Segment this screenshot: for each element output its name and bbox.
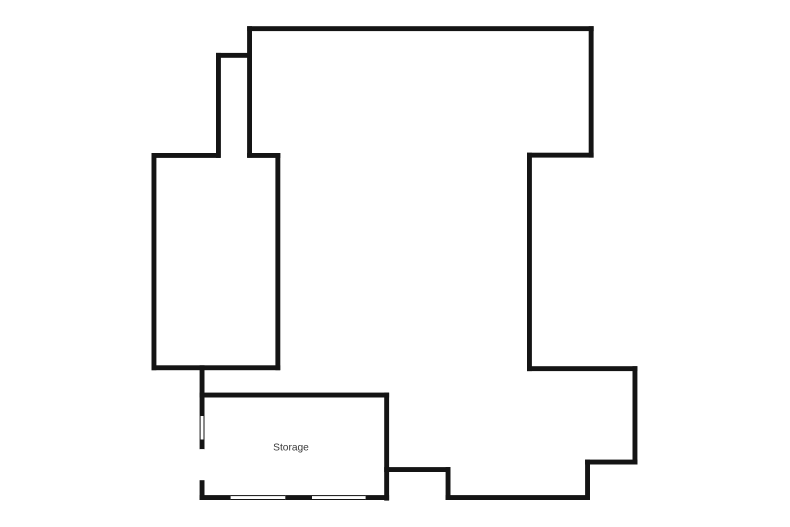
svg-text:Storage: Storage <box>273 443 309 454</box>
